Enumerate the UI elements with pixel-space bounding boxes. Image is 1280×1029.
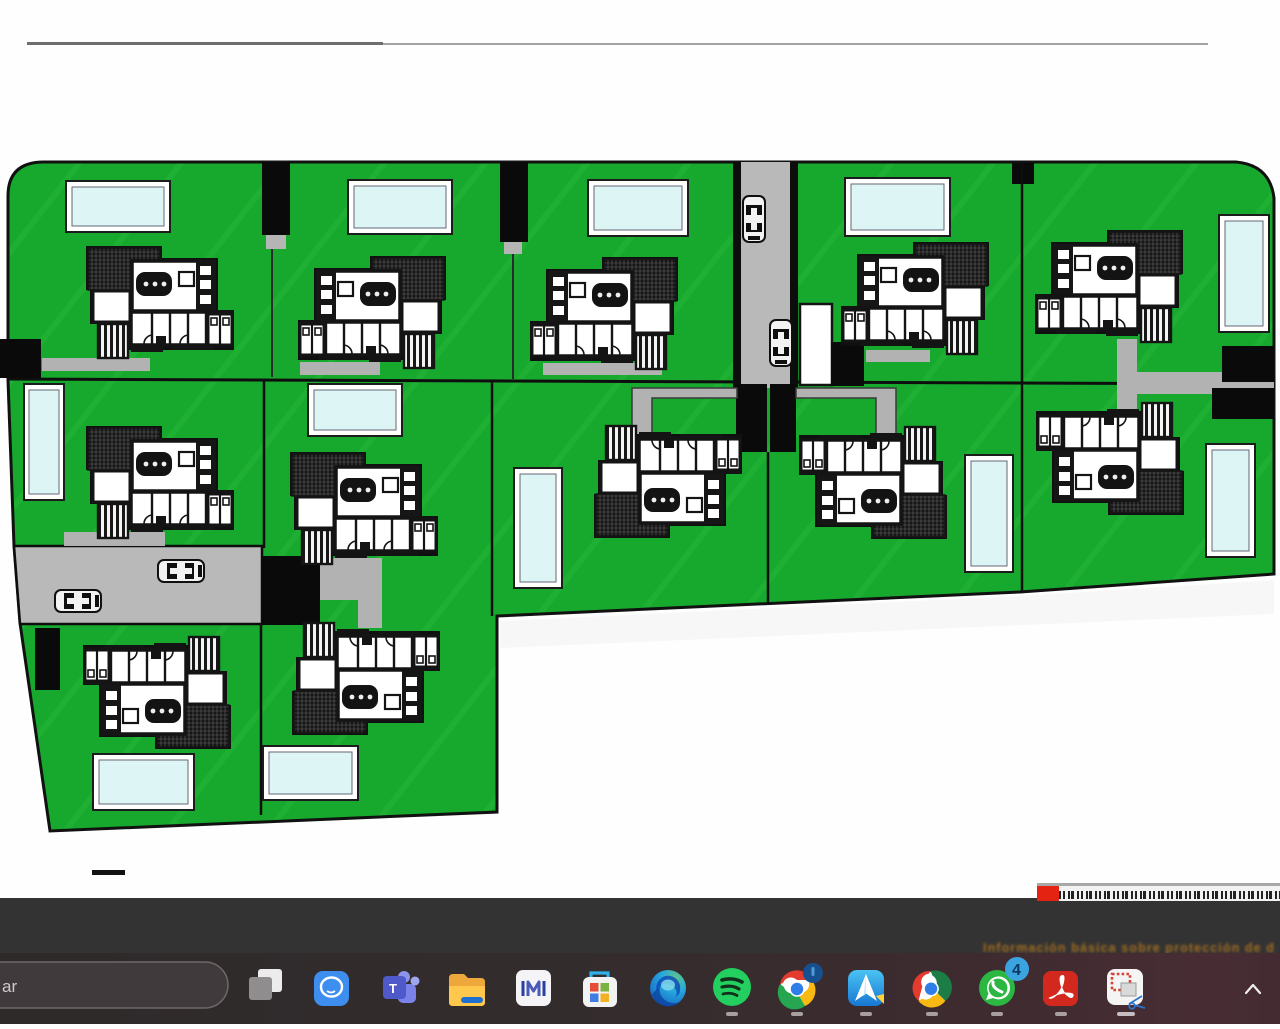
svg-text:T: T — [389, 981, 397, 996]
svg-text:ar: ar — [2, 977, 17, 996]
svg-text:4: 4 — [1012, 962, 1021, 979]
